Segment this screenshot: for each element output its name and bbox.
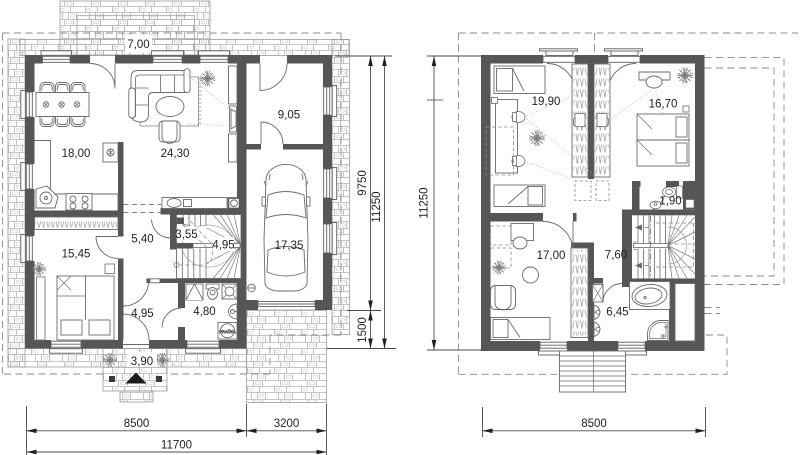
svg-text:11250: 11250 [419,187,431,218]
svg-text:4,95: 4,95 [131,308,153,320]
svg-text:6,45: 6,45 [606,307,628,319]
svg-text:7,00: 7,00 [127,39,149,51]
svg-text:17,00: 17,00 [537,250,566,262]
svg-text:15,45: 15,45 [62,249,91,261]
svg-text:8500: 8500 [124,418,150,430]
svg-text:16,70: 16,70 [649,99,678,111]
svg-text:5,40: 5,40 [131,234,153,246]
svg-text:18,00: 18,00 [62,148,91,160]
svg-text:9750: 9750 [357,170,369,196]
svg-text:7,60: 7,60 [605,250,627,262]
svg-text:3,55: 3,55 [175,229,197,241]
svg-text:9,05: 9,05 [278,110,300,122]
svg-text:1,90: 1,90 [659,196,681,208]
svg-text:17,35: 17,35 [275,240,304,252]
svg-text:3,90: 3,90 [131,356,153,368]
svg-text:8500: 8500 [581,418,607,430]
svg-text:11700: 11700 [161,440,192,452]
svg-text:1500: 1500 [357,317,369,343]
svg-text:19,90: 19,90 [532,96,561,108]
svg-text:11250: 11250 [371,191,383,222]
svg-text:3200: 3200 [274,418,300,430]
svg-text:24,30: 24,30 [161,148,190,160]
svg-text:4,95: 4,95 [212,240,234,252]
svg-text:4,80: 4,80 [193,306,215,318]
svg-text:PRAČKA: PRAČKA [219,329,236,334]
